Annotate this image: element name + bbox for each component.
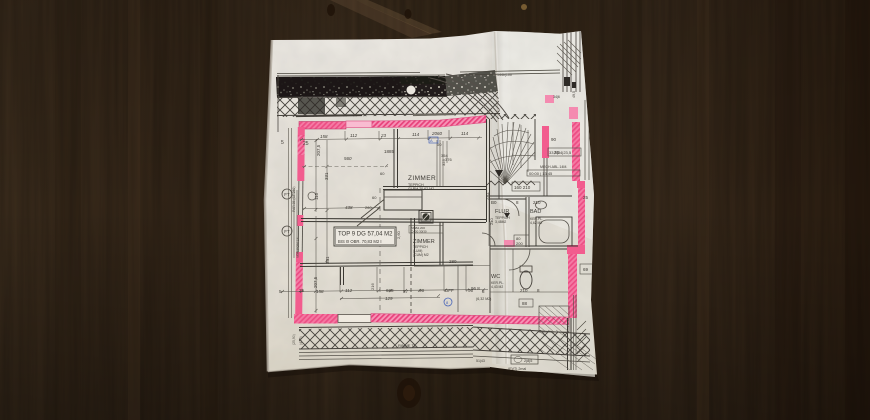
svg-text:280: 280 xyxy=(449,259,457,264)
svg-text:34|6: 34|6 xyxy=(553,95,560,99)
svg-text:331: 331 xyxy=(325,256,330,264)
svg-text:BAD: BAD xyxy=(530,209,541,215)
svg-text:(4,75): (4,75) xyxy=(299,336,303,345)
svg-text:60: 60 xyxy=(380,171,385,176)
svg-text:4,43 M2: 4,43 M2 xyxy=(491,285,503,289)
svg-text:00:00 | 13:45: 00:00 | 13:45 xyxy=(529,171,553,176)
svg-text:115: 115 xyxy=(314,192,319,200)
svg-text:23: 23 xyxy=(380,133,387,138)
svg-text:FLUR: FLUR xyxy=(495,209,509,215)
svg-text:TOP 9 DG 57,04 M2: TOP 9 DG 57,04 M2 xyxy=(338,232,393,238)
svg-text:96: 96 xyxy=(419,288,425,293)
svg-text:RINNE TL: RINNE TL xyxy=(398,343,417,348)
svg-text:00: 00 xyxy=(437,142,442,147)
svg-text:438: 438 xyxy=(345,205,353,210)
svg-text:FT: FT xyxy=(284,229,290,234)
svg-text:DFF: DFF xyxy=(445,288,454,293)
svg-text:160 210: 160 210 xyxy=(514,185,531,190)
svg-text:200: 200 xyxy=(516,241,523,246)
svg-text:2|8|5: 2|8|5 xyxy=(524,359,532,363)
svg-text:88: 88 xyxy=(522,301,528,306)
svg-text:560: 560 xyxy=(344,156,352,161)
svg-text:323: 323 xyxy=(441,159,446,166)
svg-text:WC: WC xyxy=(491,274,500,280)
svg-text:207,5: 207,5 xyxy=(313,276,318,288)
svg-text:2,60: 2,60 xyxy=(396,230,401,239)
svg-text:ZIMMER: ZIMMER xyxy=(408,175,436,182)
svg-text:216: 216 xyxy=(370,283,375,290)
svg-text:51|43: 51|43 xyxy=(476,359,485,363)
svg-text:(6,32 M2): (6,32 M2) xyxy=(476,297,491,301)
svg-text:2060: 2060 xyxy=(431,131,443,136)
svg-text:4,62 M2: 4,62 M2 xyxy=(530,221,542,225)
svg-text:MECH.ABL.14M.: MECH.ABL.14M. xyxy=(540,165,567,169)
svg-text:BIS Θ OBR. 70,83 M2 I: BIS Θ OBR. 70,83 M2 I xyxy=(338,239,382,244)
svg-text:5: 5 xyxy=(281,140,284,146)
svg-text:FT: FT xyxy=(284,192,290,197)
svg-text:112: 112 xyxy=(345,288,353,293)
svg-text:688: 688 xyxy=(386,288,394,293)
svg-text:49,5: 49,5 xyxy=(572,91,576,98)
svg-text:VOR FOM 14: VOR FOM 14 xyxy=(296,237,300,258)
svg-text:(25,90): (25,90) xyxy=(292,334,296,345)
svg-text:158: 158 xyxy=(320,134,328,139)
svg-text:25: 25 xyxy=(303,141,309,147)
svg-text:210: 210 xyxy=(520,288,528,293)
svg-text:B0: B0 xyxy=(491,200,497,205)
svg-text:25: 25 xyxy=(583,195,589,200)
svg-text:C=30 30|30: C=30 30|30 xyxy=(411,230,427,234)
svg-text:3,48M2: 3,48M2 xyxy=(495,220,506,224)
svg-text:260: 260 xyxy=(365,205,372,210)
svg-text:112: 112 xyxy=(350,133,358,138)
svg-text:25: 25 xyxy=(299,288,305,293)
svg-text:331: 331 xyxy=(324,172,329,180)
svg-text:(CUM) M2: (CUM) M2 xyxy=(413,253,429,257)
svg-text:376: 376 xyxy=(445,157,452,162)
svg-text:207,5: 207,5 xyxy=(316,144,321,156)
svg-text:69: 69 xyxy=(583,267,589,272)
svg-text:129: 129 xyxy=(385,296,393,301)
svg-text:114: 114 xyxy=(412,132,420,137)
svg-text:144b|100: 144b|100 xyxy=(497,73,512,77)
svg-text:GLPM 20,62 M2: GLPM 20,62 M2 xyxy=(408,187,434,191)
svg-text:PAR 85 (ST 250): PAR 85 (ST 250) xyxy=(292,186,296,212)
svg-text:230: 230 xyxy=(485,193,490,200)
svg-text:240: 240 xyxy=(489,218,494,225)
svg-text:87: 87 xyxy=(403,289,409,294)
svg-text:96 8: 96 8 xyxy=(471,286,480,291)
svg-text:1885: 1885 xyxy=(384,149,395,154)
svg-text:90: 90 xyxy=(551,137,557,142)
svg-text:210: 210 xyxy=(533,200,541,205)
svg-text:33,5|34|23,5: 33,5|34|23,5 xyxy=(549,150,572,155)
svg-text:114: 114 xyxy=(461,131,469,136)
svg-text:60: 60 xyxy=(372,195,377,200)
svg-text:158: 158 xyxy=(316,289,324,294)
svg-text:A: A xyxy=(430,138,433,143)
